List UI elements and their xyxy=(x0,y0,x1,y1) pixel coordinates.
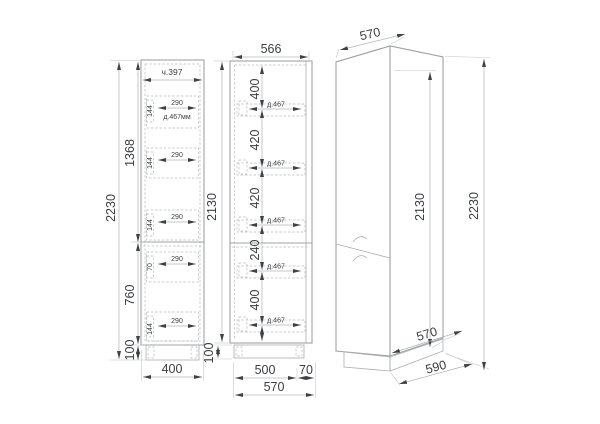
front-shelf-5: д.467 xyxy=(237,317,305,332)
iso-view: 570 2130 2230 570 590 xyxy=(336,25,490,385)
front-shelf-1: д.467 xyxy=(237,101,305,116)
front-top-width: 566 xyxy=(261,42,282,56)
front-plinth xyxy=(234,345,304,358)
side-drawer-1-width: 290 xyxy=(171,100,183,107)
front-total-width: 570 xyxy=(264,380,285,394)
side-drawer-4-height: 70 xyxy=(147,263,154,271)
iso-front-face xyxy=(336,46,390,356)
side-drawer-1: 290 144 д.467мм xyxy=(147,96,199,128)
side-upper-height: 1368 xyxy=(123,139,137,167)
iso-total-height: 2230 xyxy=(467,192,481,220)
front-shelf-3-depth: д.467 xyxy=(267,218,285,225)
front-gap-bottom: 400 xyxy=(248,290,262,311)
front-side-offset: 70 xyxy=(299,363,313,377)
side-plinth-foot-left xyxy=(148,347,154,358)
side-drawer-4-width: 290 xyxy=(171,256,183,263)
side-view: ч.397 290 144 д.467мм 290 144 290 144 xyxy=(104,60,204,381)
side-drawer-5-width: 290 xyxy=(171,318,183,325)
front-gap-2: 420 xyxy=(248,130,262,151)
side-drawer-5: 290 144 xyxy=(147,312,199,341)
front-shelf-4: д.467 xyxy=(237,263,305,278)
front-body-height: 2130 xyxy=(205,193,219,221)
side-drawer-3: 290 144 xyxy=(147,210,199,240)
front-gap-4: 240 xyxy=(248,240,262,261)
side-drawer-3-height: 144 xyxy=(147,219,154,231)
side-drawer-2: 290 144 xyxy=(147,148,199,178)
front-shelf-4-depth: д.467 xyxy=(267,264,285,271)
side-plinth-foot-right xyxy=(191,347,197,358)
side-drawer-1-height: 144 xyxy=(147,105,154,117)
front-shelf-2: д.467 xyxy=(237,160,305,175)
iso-base-depth: 590 xyxy=(424,358,448,377)
side-drawer-3-width: 290 xyxy=(171,214,183,221)
side-drawer-2-height: 144 xyxy=(147,157,154,169)
side-bottom-width: 400 xyxy=(162,362,183,376)
drawing-canvas: ч.397 290 144 д.467мм 290 144 290 144 xyxy=(0,0,600,424)
side-depth-note: ч.397 xyxy=(162,67,183,77)
side-drawer-2-width: 290 xyxy=(171,152,183,159)
side-total-height: 2230 xyxy=(104,194,118,222)
front-gap-3: 420 xyxy=(248,188,262,209)
side-lower-height: 760 xyxy=(123,285,137,306)
front-shelf-2-depth: д.467 xyxy=(267,161,285,168)
side-drawer-1-note: д.467мм xyxy=(163,114,191,121)
front-shelf-3: д.467 xyxy=(237,217,305,232)
side-plinth-height: 100 xyxy=(123,340,137,361)
side-drawer-4: 290 70 xyxy=(147,252,199,282)
front-gap-top: 400 xyxy=(248,79,262,100)
front-shelf-1-depth: д.467 xyxy=(267,102,285,109)
front-view: д.467 д.467 д.467 д.467 д.467 xyxy=(202,42,316,398)
front-inner-width: 500 xyxy=(255,363,276,377)
cabinet-technical-drawing: ч.397 290 144 д.467мм 290 144 290 144 xyxy=(0,0,600,424)
front-shelf-5-depth: д.467 xyxy=(267,318,285,325)
iso-body-height: 2130 xyxy=(413,193,427,221)
front-plinth-height: 100 xyxy=(202,343,216,364)
front-gap-dimensions: 400 420 420 240 400 xyxy=(248,66,262,341)
side-drawer-5-height: 144 xyxy=(147,323,154,335)
